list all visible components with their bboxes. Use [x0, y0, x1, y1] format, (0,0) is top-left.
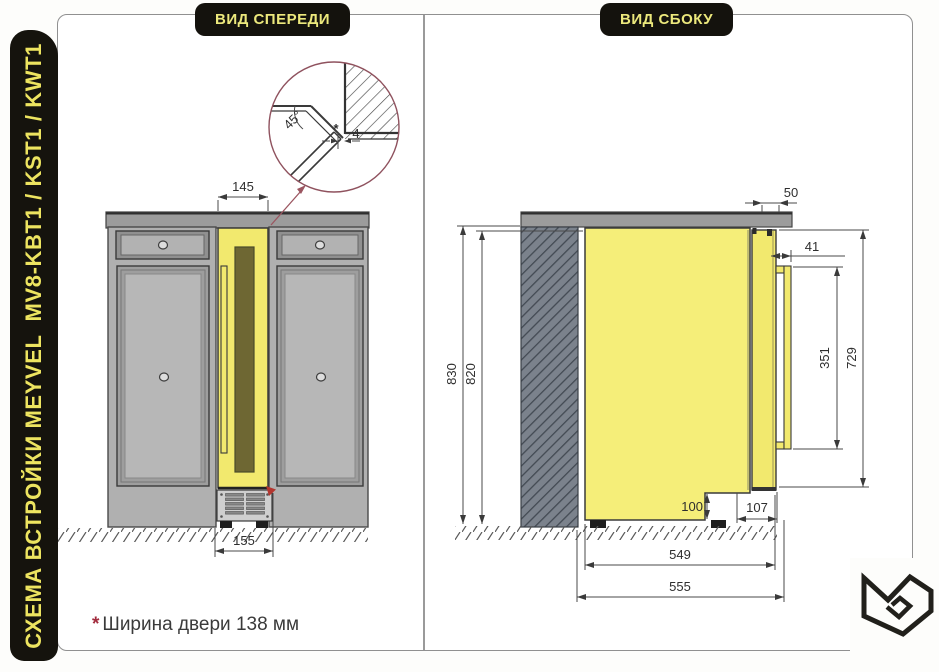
- dim-label-820: 820: [463, 363, 478, 385]
- schematic-page: СХЕМА ВСТРОЙКИ MEYVEL MV8-KBT1 / KST1 / …: [0, 0, 939, 672]
- left-cabinet: [108, 227, 216, 527]
- side-view-drawing: 50 41 351: [444, 185, 869, 602]
- meyvel-logo: [850, 558, 939, 672]
- dim-label-50: 50: [784, 185, 798, 200]
- dim-label-830: 830: [444, 363, 459, 385]
- dim-label-351: 351: [817, 347, 832, 369]
- floor-hatch: [455, 526, 777, 540]
- dim-label-41: 41: [805, 239, 819, 254]
- dim-label-100: 100: [681, 499, 703, 514]
- door-width-footnote: *Ширина двери 138 мм: [92, 614, 299, 636]
- title-sidebar: СХЕМА ВСТРОЙКИ MEYVEL MV8-KBT1 / KST1 / …: [10, 30, 58, 661]
- corner-detail: 45° * 4: [269, 58, 403, 192]
- dim-label-555: 555: [669, 579, 691, 594]
- dim-label-549: 549: [669, 547, 691, 562]
- front-view-label: ВИД СПЕРЕДИ: [215, 11, 330, 28]
- detail-gap-label: 4: [352, 126, 359, 141]
- floor-hatch: [58, 528, 368, 542]
- dim-label-107: 107: [746, 500, 768, 515]
- wall-section: [521, 227, 578, 527]
- glass-window: [235, 247, 254, 472]
- door-handle-front: [221, 266, 227, 453]
- foot: [220, 521, 232, 528]
- footnote-text: Ширина двери 138 мм: [102, 614, 299, 635]
- wine-cooler-front: [217, 228, 276, 528]
- dim-label-145: 145: [232, 179, 254, 194]
- side-view-badge: ВИД СБОКУ: [600, 3, 733, 36]
- drawer-knob: [316, 241, 325, 249]
- door-knob: [160, 373, 169, 381]
- dim-label-155: 155: [233, 533, 255, 548]
- schematic-canvas: 145 155: [0, 0, 939, 672]
- door-handle-side: [776, 266, 791, 449]
- front-view-badge: ВИД СПЕРЕДИ: [195, 3, 350, 36]
- dim-countertop-overhang: [745, 200, 797, 212]
- dim-label-729: 729: [844, 347, 859, 369]
- right-cabinet: [269, 227, 368, 527]
- foot: [256, 521, 268, 528]
- side-view-label: ВИД СБОКУ: [620, 11, 713, 28]
- drawer-knob: [159, 241, 168, 249]
- cooler-door-side: [752, 228, 776, 491]
- dim-niche-width: [218, 194, 268, 211]
- front-view-drawing: 145 155: [58, 58, 403, 557]
- door-knob: [317, 373, 326, 381]
- footnote-marker: *: [92, 614, 99, 635]
- cooler-body-side: [585, 228, 750, 520]
- page-title: СХЕМА ВСТРОЙКИ MEYVEL MV8-KBT1 / KST1 / …: [21, 43, 47, 649]
